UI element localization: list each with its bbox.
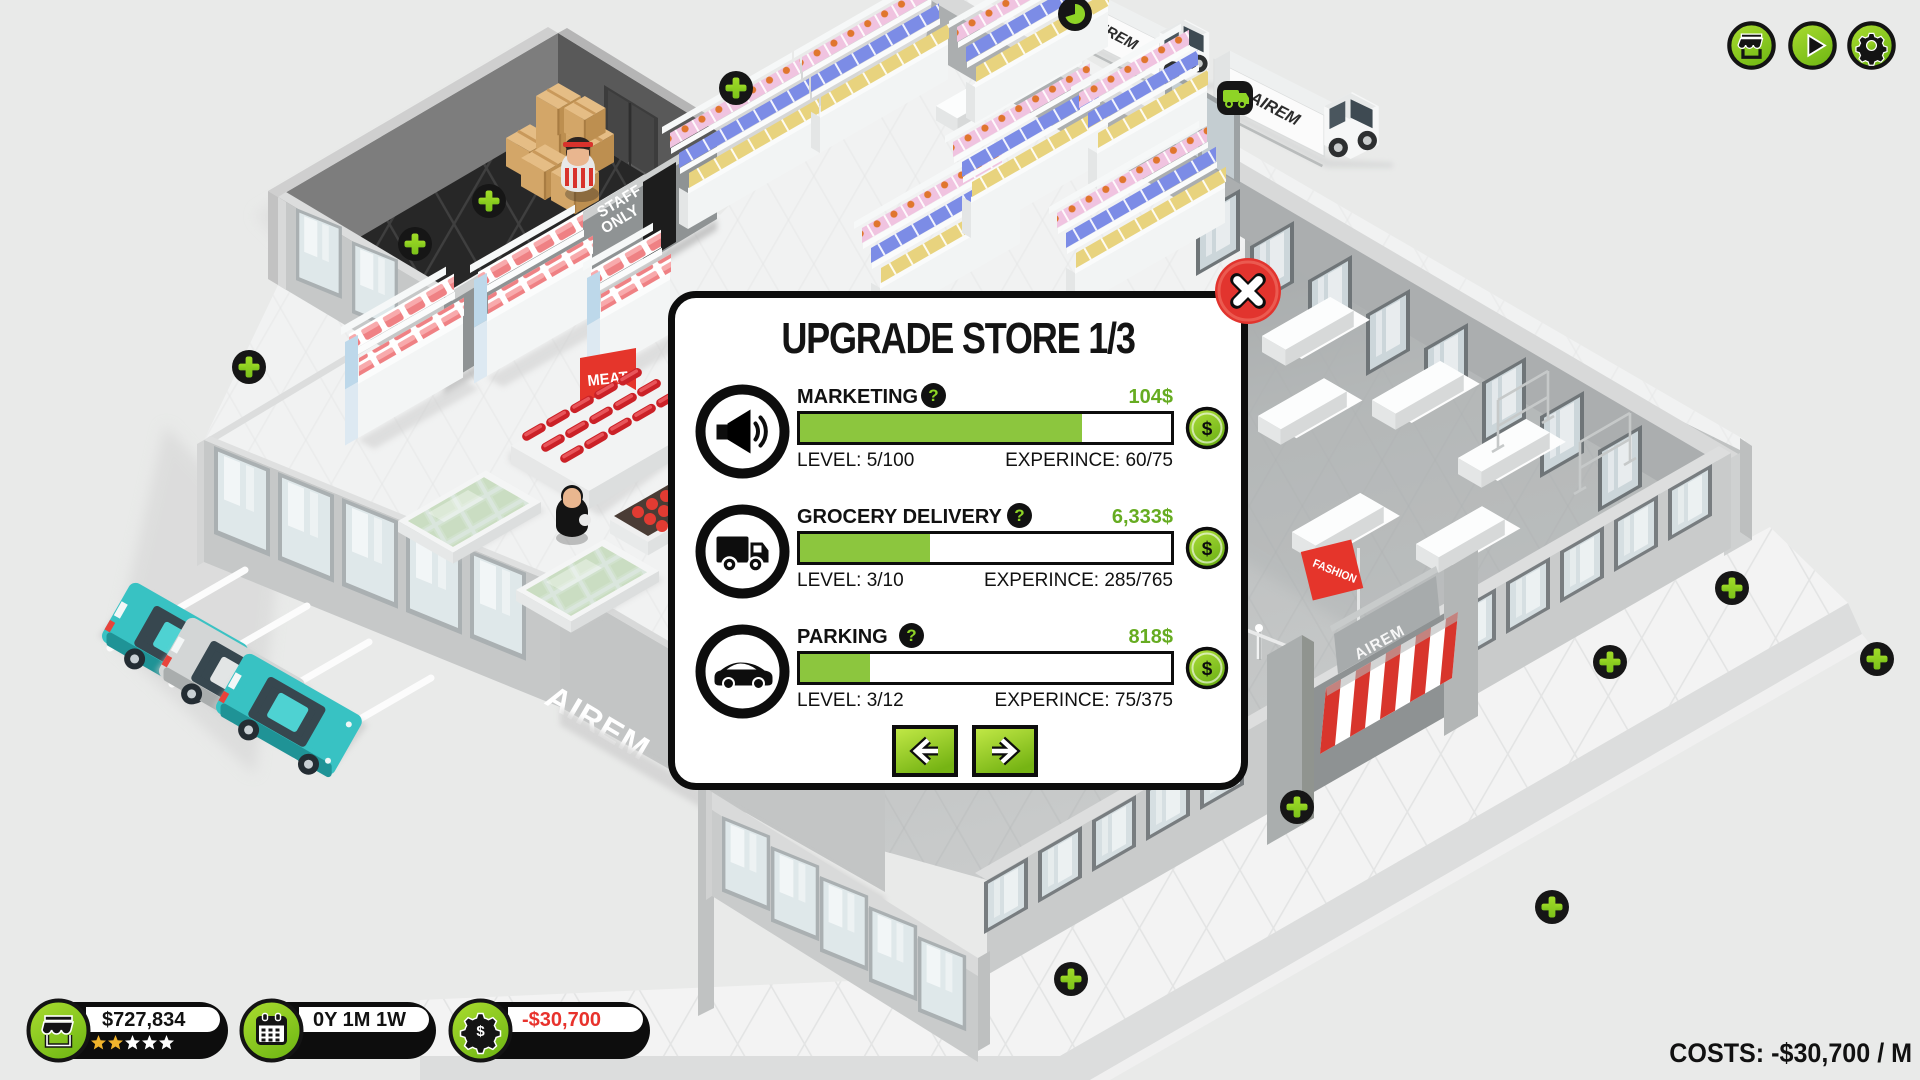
svg-text:$: $ [1202,539,1213,560]
svg-text:$: $ [1202,659,1213,680]
svg-text:$: $ [476,1023,485,1040]
svg-text:$: $ [1202,419,1213,440]
